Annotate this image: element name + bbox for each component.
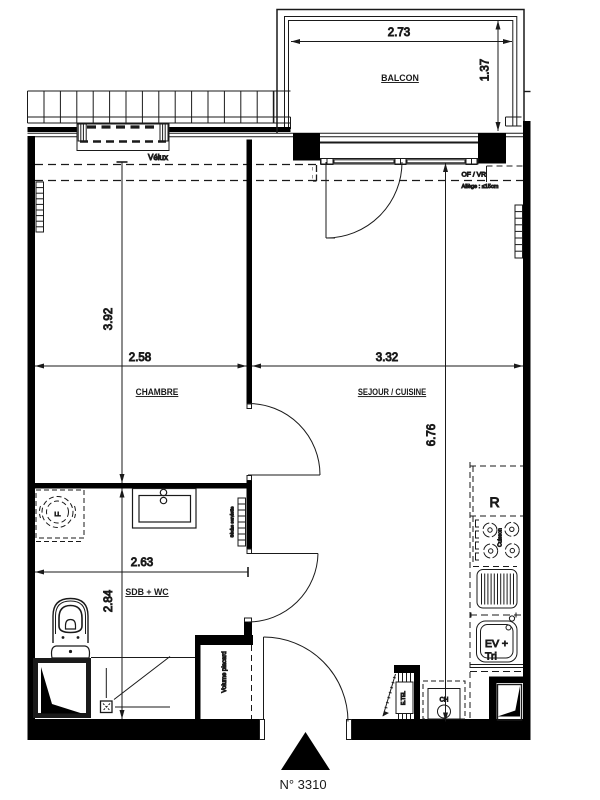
svg-text:Allège : ≤15cm: Allège : ≤15cm [462,184,499,190]
svg-text:1.37: 1.37 [480,59,492,81]
svg-text:Tri: Tri [485,651,497,663]
svg-text:6.76: 6.76 [426,424,438,446]
svg-text:3.32: 3.32 [376,352,398,364]
svg-text:BALCON: BALCON [381,73,419,83]
svg-text:2.58: 2.58 [129,352,151,364]
svg-text:R: R [490,494,500,510]
svg-text:Cuisson: Cuisson [498,528,504,547]
svg-text:CH: CH [440,698,449,704]
svg-text:2.63: 2.63 [131,557,153,569]
svg-text:Sèche serviette: Sèche serviette [230,506,235,538]
svg-text:SEJOUR / CUISINE: SEJOUR / CUISINE [358,386,427,397]
svg-text:2.84: 2.84 [103,589,115,612]
svg-text:SDB + WC: SDB + WC [125,587,169,597]
svg-text:E.TEL: E.TEL [401,691,407,705]
svg-text:N° 3310: N° 3310 [279,777,326,792]
svg-text:Vélux: Vélux [148,153,168,162]
svg-text:CHAMBRE: CHAMBRE [136,387,179,398]
svg-text:3.92: 3.92 [103,308,115,330]
svg-text:2.73: 2.73 [388,27,410,39]
svg-text:EV +: EV + [485,638,508,650]
svg-text:LL: LL [54,512,60,518]
svg-text:OF / VR: OF / VR [462,172,487,179]
svg-text:Volume placard: Volume placard [222,651,228,692]
